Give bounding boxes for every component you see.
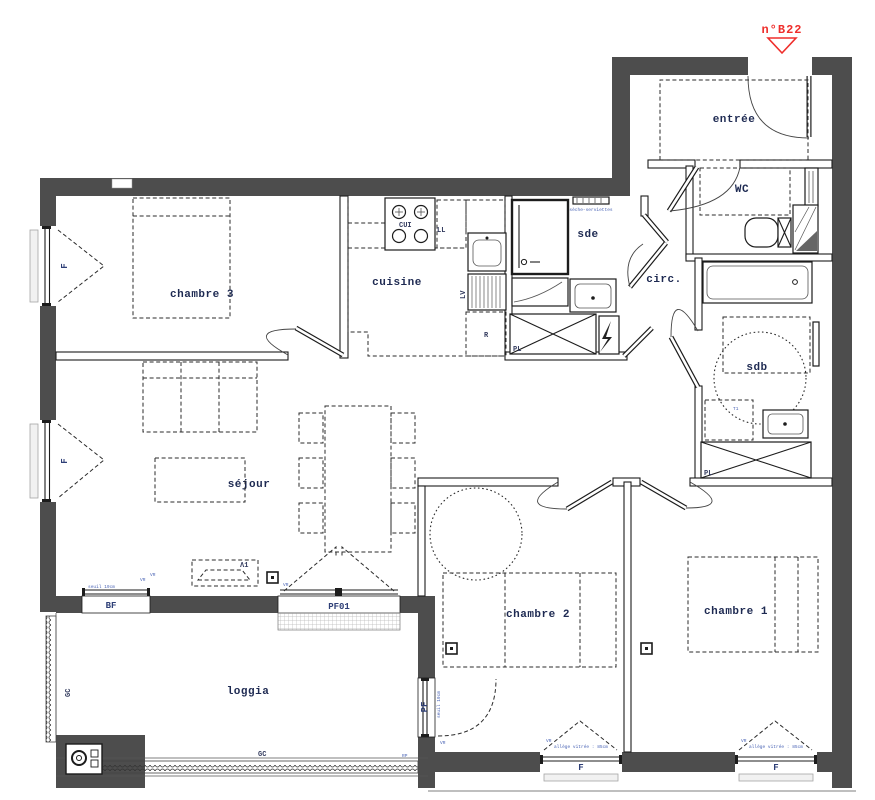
floor-plan-drawing: n°B22 xyxy=(0,0,875,800)
shutter-label: VR xyxy=(741,738,747,744)
cooktop-label: CUI xyxy=(399,222,412,230)
rp-label: RP xyxy=(402,753,408,759)
window-f3: F allège vitrée : 85cm VR xyxy=(540,721,622,781)
loggia-door-swing xyxy=(438,679,496,736)
thermostat xyxy=(267,572,278,583)
shower xyxy=(512,200,568,274)
closet-sdb: PL xyxy=(701,442,811,478)
shutter-label: VR xyxy=(150,572,156,578)
room-chambre2: chambre 2 xyxy=(430,488,616,667)
electrical-panel xyxy=(599,316,619,354)
exterior-walls xyxy=(40,57,856,791)
washbasin xyxy=(763,410,808,438)
room-label-cuisine: cuisine xyxy=(372,277,422,289)
rainwater-pipe xyxy=(66,744,102,774)
room-label-loggia: loggia xyxy=(227,686,270,698)
window-bf: BF seuil 19cm VR xyxy=(82,577,150,613)
washer-zone xyxy=(437,200,466,248)
closet-sde: PL xyxy=(510,314,596,354)
shutter-label: VR xyxy=(440,740,446,746)
threshold-note: seuil 19cm xyxy=(436,691,442,718)
shutter-label: VR xyxy=(546,738,552,744)
room-label-chambre1: chambre 1 xyxy=(704,606,768,618)
room-label-circ: circ. xyxy=(646,274,682,286)
toilet xyxy=(745,218,791,247)
room-label-sde: sde xyxy=(577,229,598,241)
kitchen-sink xyxy=(468,233,506,271)
unit-marker: n°B22 xyxy=(761,23,802,53)
technical-shaft xyxy=(793,205,818,253)
room-sde: sde sèche-serviettes PL xyxy=(510,197,619,354)
room-label-chambre3: chambre 3 xyxy=(170,289,234,301)
room-label-sejour: séjour xyxy=(228,479,271,491)
thermostat xyxy=(641,643,652,654)
shutter-label: VR xyxy=(140,577,146,583)
room-cuisine: cuisine CUI LL LV R xyxy=(348,196,506,356)
entry-triangle-icon xyxy=(768,38,796,53)
chambre3-door xyxy=(266,328,343,355)
dishwasher-label: LV xyxy=(460,290,468,299)
sofa xyxy=(143,362,257,432)
room-label-entree: entrée xyxy=(713,114,756,126)
radiator-label: Λ1 xyxy=(240,562,248,570)
towel-rail: sèche-serviettes xyxy=(569,197,613,213)
window-f4: F allège vitrée : 85cm VR xyxy=(735,721,817,781)
unit-number-label: n°B22 xyxy=(761,23,802,37)
railing-label: GC xyxy=(65,689,73,697)
bathtub xyxy=(703,262,812,303)
fridge-label: R xyxy=(484,332,489,340)
cooktop: CUI xyxy=(385,198,435,250)
towel-radiator xyxy=(813,322,819,366)
room-label-chambre2: chambre 2 xyxy=(506,609,570,621)
railing-label: GC xyxy=(258,751,266,759)
towel-rail-label: sèche-serviettes xyxy=(569,207,613,213)
closet-label: PL xyxy=(513,346,521,354)
entry-door xyxy=(748,76,809,138)
room-chambre1: chambre 1 xyxy=(641,557,818,654)
low-window-label: BF xyxy=(106,601,117,611)
window-f2: F xyxy=(30,420,104,502)
wc-door xyxy=(669,167,740,211)
room-wc: WC xyxy=(700,168,818,253)
dishwasher: LV xyxy=(460,274,506,310)
turning-circle xyxy=(430,488,522,580)
french-window-label: PF01 xyxy=(328,602,350,612)
dining-table xyxy=(299,406,415,552)
tub-zone-label: T1 xyxy=(733,406,739,412)
railing-left: GC xyxy=(46,616,73,742)
threshold-note: seuil 19cm xyxy=(88,584,115,590)
thermostat xyxy=(446,643,457,654)
room-sejour: séjour Λ1 VR xyxy=(143,362,415,586)
sill-note: allège vitrée : 85cm xyxy=(554,744,608,750)
window-label: F xyxy=(60,263,70,268)
sdb-door xyxy=(671,309,698,387)
room-label-wc: WC xyxy=(735,184,749,196)
washer-label: LL xyxy=(437,227,445,235)
floor-plan-page: n°B22 xyxy=(0,0,875,800)
vanity xyxy=(512,278,568,306)
sill-note: allège vitrée : 85cm xyxy=(749,744,803,750)
radiator: Λ1 xyxy=(192,560,258,586)
door-window-label: PF xyxy=(420,702,430,713)
room-chambre3: chambre 3 xyxy=(133,198,234,318)
window-label: F xyxy=(60,458,70,463)
room-label-sdb: sdb xyxy=(746,362,767,374)
shutter-label: VR xyxy=(283,582,289,588)
window-f1: F xyxy=(30,226,104,306)
window-label: F xyxy=(773,763,778,773)
washbasin-sde xyxy=(570,279,616,312)
closet-label: PL xyxy=(704,470,712,478)
window-pf01: PF01 VR xyxy=(278,547,400,630)
window-label: F xyxy=(578,763,583,773)
room-sdb: sdb T1 PL xyxy=(701,262,819,478)
